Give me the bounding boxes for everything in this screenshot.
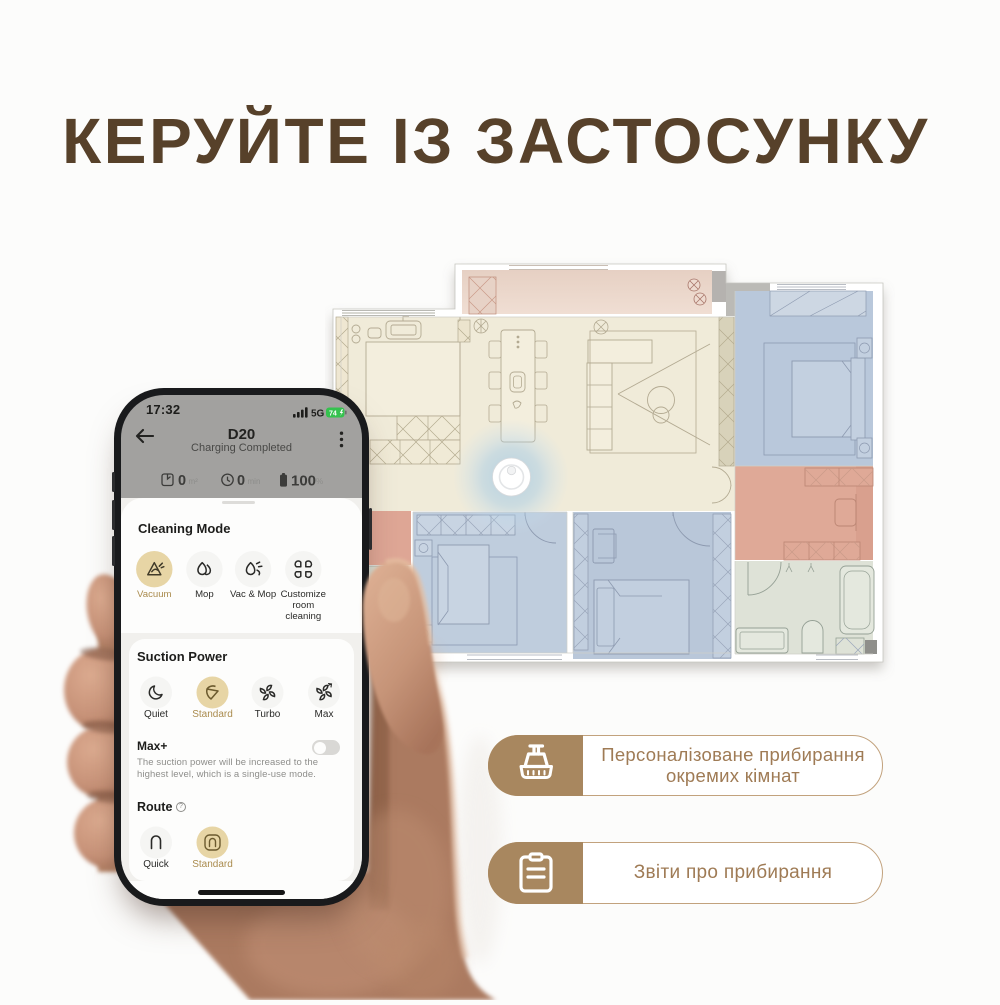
svg-text:Customize: Customize <box>280 589 325 600</box>
svg-text:Max: Max <box>315 709 334 720</box>
svg-text:Mop: Mop <box>195 589 214 600</box>
svg-text:100: 100 <box>291 473 316 489</box>
svg-text:0: 0 <box>178 473 186 488</box>
svg-text:Standard: Standard <box>192 709 233 720</box>
svg-text:%: % <box>316 477 323 486</box>
svg-text:room: room <box>292 600 314 611</box>
svg-text:Vac & Mop: Vac & Mop <box>229 589 275 600</box>
svg-text:Turbo: Turbo <box>255 709 281 720</box>
svg-text:Quick: Quick <box>143 859 170 870</box>
svg-text:5G: 5G <box>311 409 325 418</box>
svg-text:cleaning: cleaning <box>285 611 321 621</box>
svg-text:74: 74 <box>329 410 337 417</box>
svg-text:min: min <box>248 477 261 486</box>
svg-text:Quiet: Quiet <box>144 709 168 720</box>
svg-text:0: 0 <box>237 473 245 488</box>
svg-text:m²: m² <box>189 477 199 486</box>
svg-text:Standard: Standard <box>192 859 233 870</box>
svg-text:Vacuum: Vacuum <box>137 589 171 600</box>
